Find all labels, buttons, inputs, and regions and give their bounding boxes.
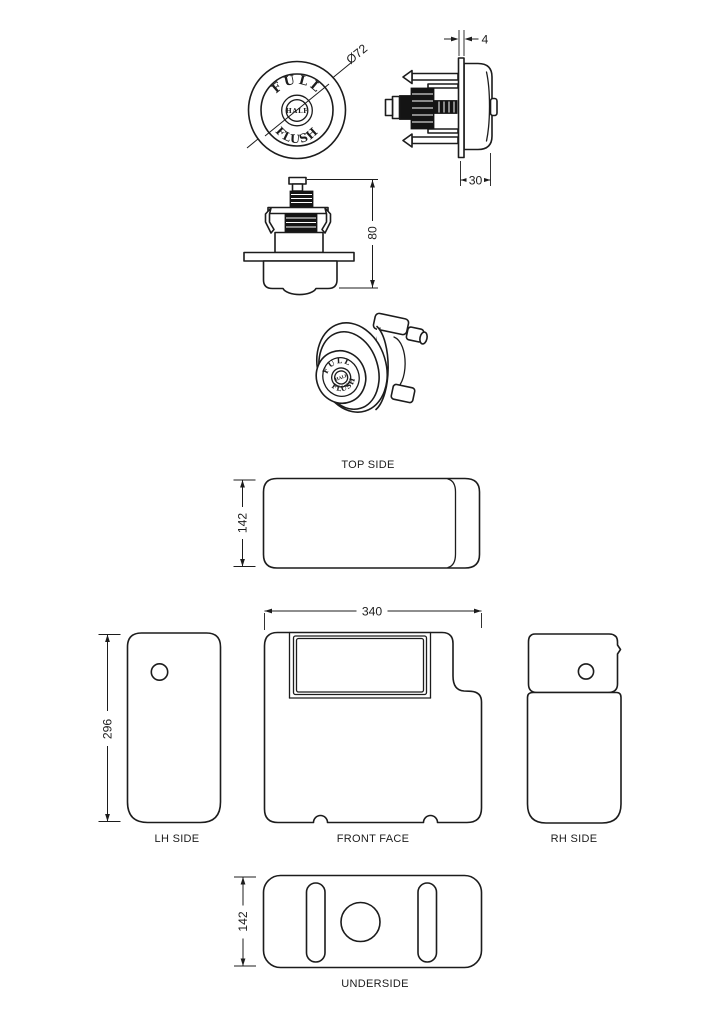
top-depth-dimension: 142 <box>234 480 256 567</box>
cistern-front-view: 340 FRONT FACE <box>265 604 482 845</box>
button-flange <box>244 253 354 262</box>
lh-height-dimension: 296 <box>99 635 121 822</box>
cistern-underside-view: 142 UNDERSIDE <box>234 876 482 991</box>
rh-side-label: RH SIDE <box>551 833 598 845</box>
height-dim-text: 80 <box>366 226 380 240</box>
plunger-tip <box>386 100 393 116</box>
lh-outline <box>128 633 221 823</box>
button-face-view: FULL FLUSH HALF Ø72 <box>247 41 370 158</box>
wall-plate <box>459 58 465 158</box>
underside-label: UNDERSIDE <box>341 978 409 990</box>
button-dome-front <box>264 261 338 295</box>
cistern-lh-view: 296 LH SIDE <box>99 633 221 845</box>
diameter-dim-text: Ø72 <box>344 41 371 67</box>
plunger-neck <box>293 184 303 191</box>
top-view-outline <box>264 479 480 569</box>
plunger-step <box>393 97 400 119</box>
technical-drawing-page: FULL FLUSH HALF Ø72 <box>0 0 724 1024</box>
rh-inlet-hole <box>578 664 593 679</box>
iso-bottom-clip <box>391 384 416 403</box>
upper-thread-block <box>290 191 313 208</box>
clip-top-bar <box>412 74 458 81</box>
plunger-cap <box>289 178 306 185</box>
clip-bottom-barb <box>403 134 412 147</box>
iso-back-ring <box>393 337 405 391</box>
projection-dimension: 30 <box>461 153 491 188</box>
cistern-top-view: TOP SIDE 142 <box>234 459 480 568</box>
lh-height-text: 296 <box>101 719 115 740</box>
plunger-thread <box>400 96 412 120</box>
clip-top-barb <box>403 71 412 84</box>
face-text-half: HALF <box>286 107 308 115</box>
projection-text: 30 <box>469 174 483 188</box>
front-face-label: FRONT FACE <box>337 833 409 845</box>
drawing-canvas: FULL FLUSH HALF Ø72 <box>0 0 724 1024</box>
top-side-label: TOP SIDE <box>341 459 394 471</box>
underside-depth-dimension: 142 <box>234 877 256 966</box>
underside-slot-left <box>307 883 326 962</box>
underside-slot-right <box>418 883 437 962</box>
underside-outlet-hole <box>341 903 380 942</box>
clip-top-lip <box>428 84 458 88</box>
lh-inlet-hole <box>151 664 167 680</box>
button-front-view: 80 <box>244 178 380 295</box>
plate-thickness-dimension: 4 <box>444 30 489 56</box>
clip-crossbar <box>268 208 328 214</box>
rh-upper-outline <box>529 634 621 693</box>
clip-bottom-lip <box>428 129 458 133</box>
front-width-dimension: 340 <box>265 604 482 630</box>
plate-thickness-text: 4 <box>482 33 489 47</box>
front-width-text: 340 <box>362 605 383 619</box>
clip-bottom-bar <box>412 137 458 144</box>
button-body <box>275 233 323 253</box>
button-iso-view: FULL FLUSH HALF <box>306 313 428 421</box>
lh-side-label: LH SIDE <box>155 833 200 845</box>
top-depth-text: 142 <box>236 513 250 534</box>
button-side-view: 4 30 <box>386 30 498 188</box>
rh-lower-outline <box>528 693 622 824</box>
underside-depth-text: 142 <box>236 911 250 932</box>
cistern-rh-view: RH SIDE <box>528 634 622 845</box>
dome-center-tab <box>491 99 498 116</box>
